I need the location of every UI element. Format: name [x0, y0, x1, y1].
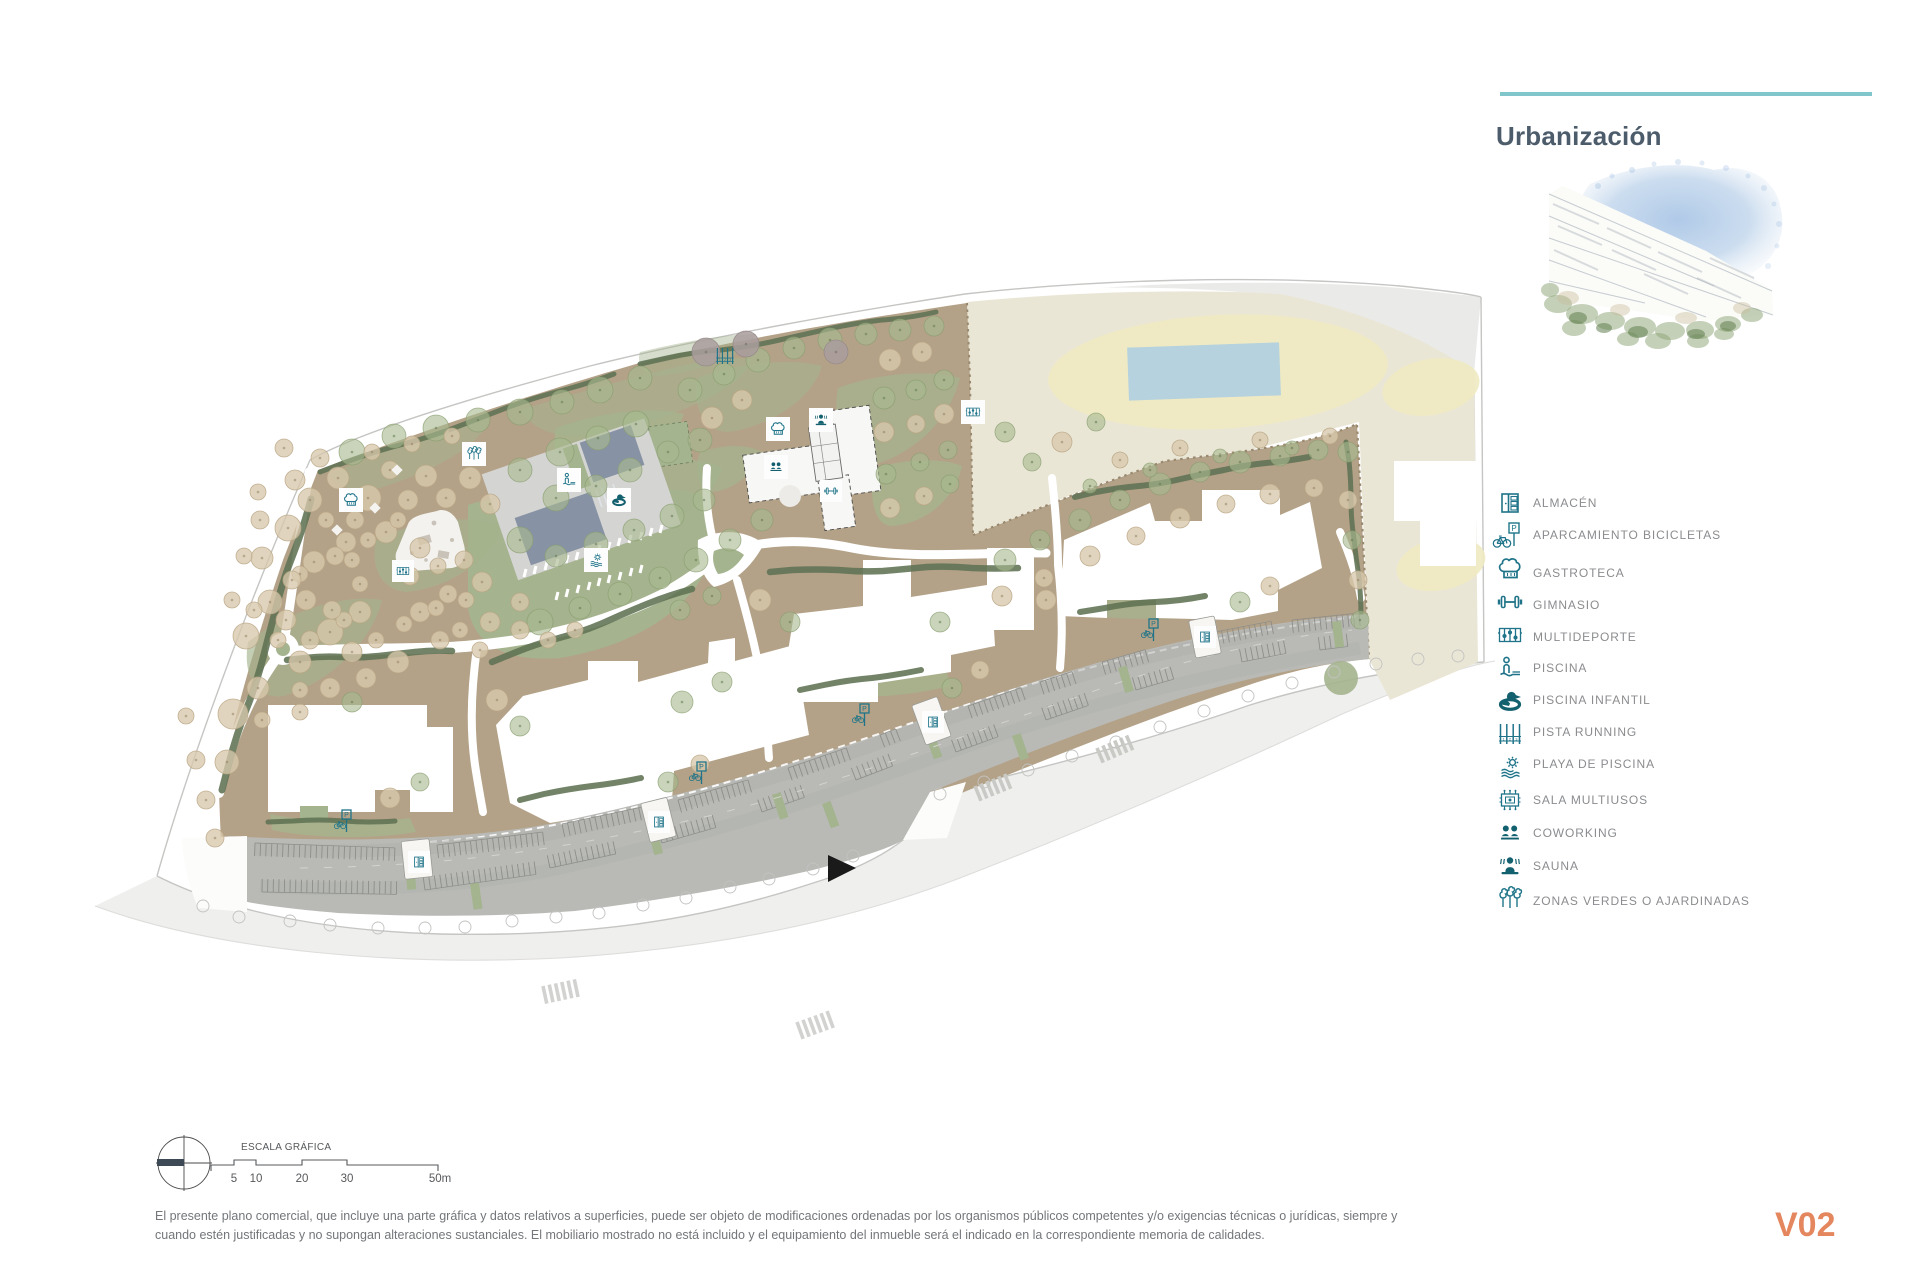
svg-text:1: 1 — [719, 358, 721, 362]
svg-text:20: 20 — [296, 1173, 309, 1185]
svg-text:5: 5 — [231, 1173, 237, 1185]
svg-text:P: P — [862, 706, 867, 713]
svg-text:50m: 50m — [429, 1173, 451, 1185]
svg-text:30: 30 — [341, 1173, 354, 1185]
svg-text:P: P — [1151, 621, 1156, 628]
svg-text:3: 3 — [729, 358, 731, 362]
svg-text:P: P — [699, 764, 704, 771]
svg-text:P: P — [1511, 524, 1516, 533]
svg-text:10: 10 — [250, 1173, 263, 1185]
svg-text:P: P — [344, 812, 349, 819]
svg-text:2: 2 — [724, 358, 726, 362]
